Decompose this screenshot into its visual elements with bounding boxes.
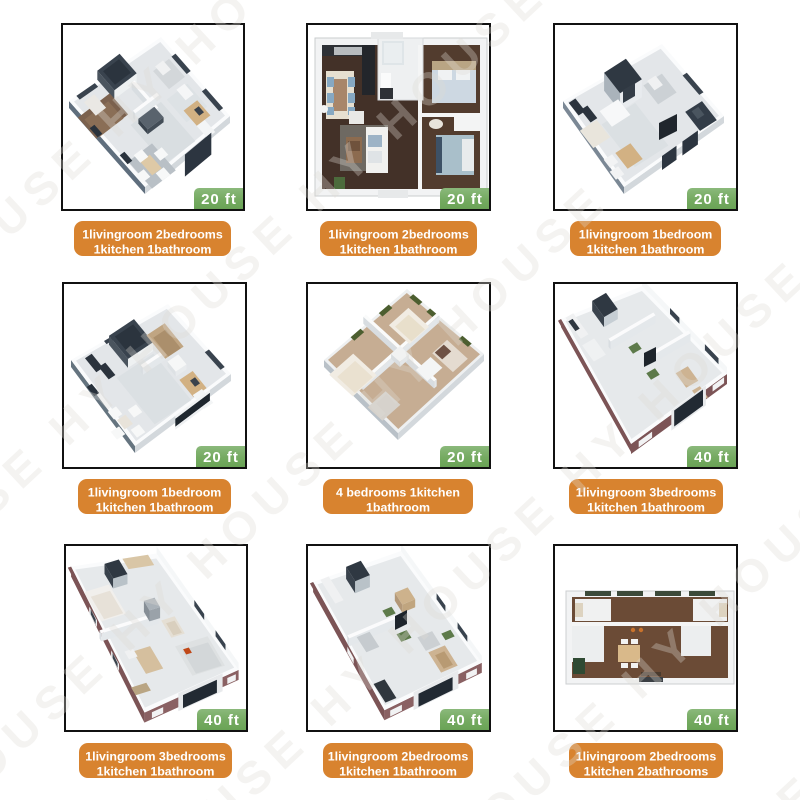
svg-text:1livingroom 2bedrooms: 1livingroom 2bedrooms — [82, 228, 223, 242]
svg-text:40 ft: 40 ft — [204, 712, 240, 729]
svg-text:1livingroom 3bedrooms: 1livingroom 3bedrooms — [85, 749, 226, 763]
svg-text:1livingroom 3bedrooms: 1livingroom 3bedrooms — [575, 485, 716, 499]
svg-text:1kitchen 2bathrooms: 1kitchen 2bathrooms — [583, 764, 708, 778]
svg-text:20 ft: 20 ft — [447, 191, 483, 208]
svg-text:1kitchen 1bathroom: 1kitchen 1bathroom — [94, 243, 212, 257]
svg-text:1kitchen 1bathroom: 1kitchen 1bathroom — [587, 500, 705, 514]
svg-text:1livingroom 2bedrooms: 1livingroom 2bedrooms — [575, 749, 716, 763]
svg-text:1kitchen 1bathroom: 1kitchen 1bathroom — [95, 500, 213, 514]
svg-text:20 ft: 20 ft — [694, 191, 730, 208]
svg-text:20 ft: 20 ft — [447, 449, 483, 466]
svg-text:20 ft: 20 ft — [203, 449, 239, 466]
svg-text:40 ft: 40 ft — [447, 712, 483, 729]
svg-text:1kitchen 1bathroom: 1kitchen 1bathroom — [587, 243, 705, 257]
svg-text:4 bedrooms 1kitchen: 4 bedrooms 1kitchen — [336, 485, 460, 499]
svg-text:1kitchen 1bathroom: 1kitchen 1bathroom — [339, 243, 457, 257]
svg-text:1livingroom 1bedroom: 1livingroom 1bedroom — [579, 228, 713, 242]
svg-text:1livingroom 2bedrooms: 1livingroom 2bedrooms — [328, 228, 469, 242]
svg-text:1bathroom: 1bathroom — [366, 500, 430, 514]
svg-text:40 ft: 40 ft — [694, 712, 730, 729]
svg-text:HY HOUSE HY HOUSE HY HOUSE HY: HY HOUSE HY HOUSE HY HOUSE HY HOUSE — [0, 0, 34, 360]
svg-text:1kitchen 1bathroom: 1kitchen 1bathroom — [97, 764, 215, 778]
svg-text:40 ft: 40 ft — [694, 449, 730, 466]
svg-text:1livingroom 1bedroom: 1livingroom 1bedroom — [88, 485, 222, 499]
svg-text:20 ft: 20 ft — [201, 191, 237, 208]
svg-text:1kitchen 1bathroom: 1kitchen 1bathroom — [339, 764, 457, 778]
svg-text:1livingroom 2bedrooms: 1livingroom 2bedrooms — [328, 749, 469, 763]
